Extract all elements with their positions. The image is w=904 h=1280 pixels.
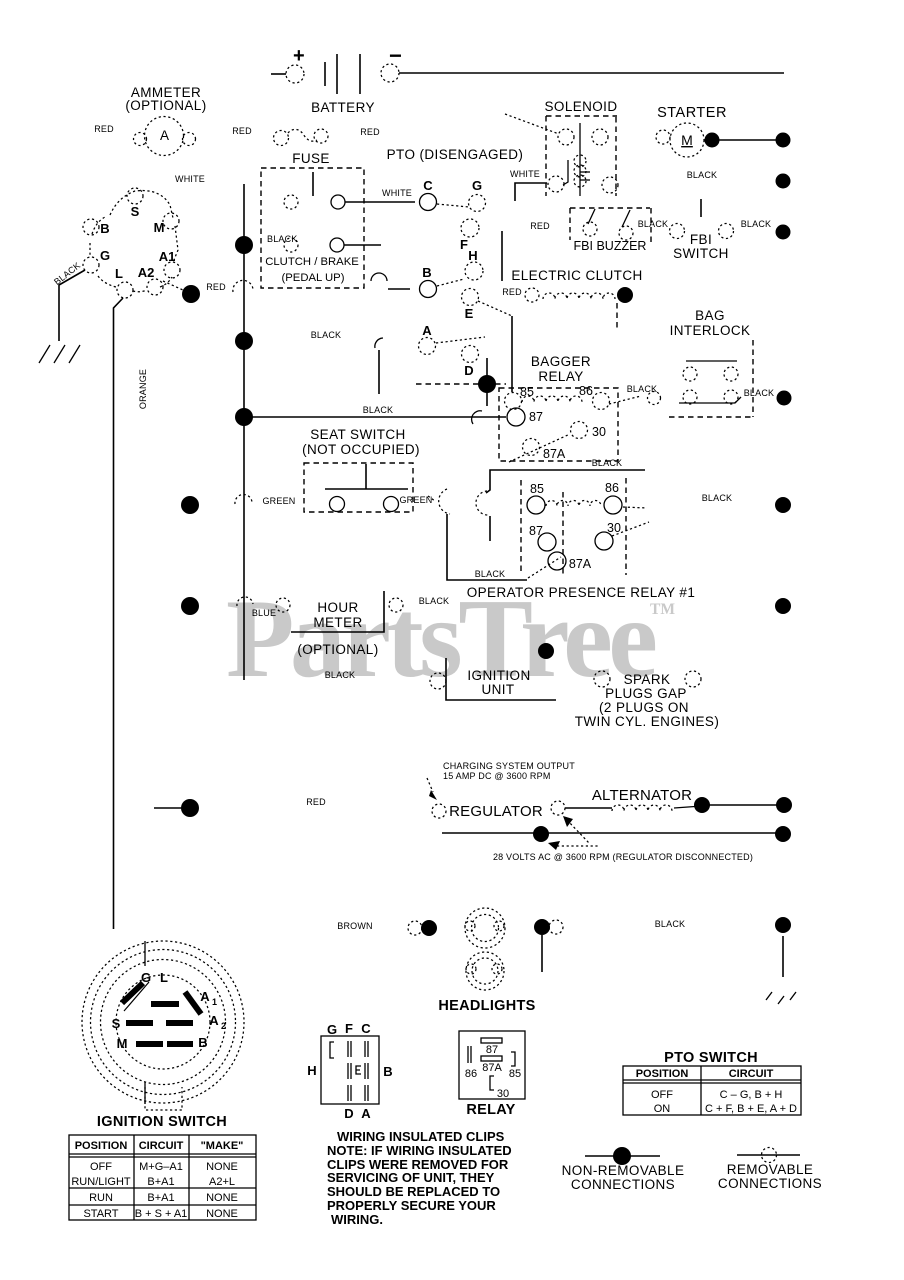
svg-text:ALTERNATOR: ALTERNATOR — [592, 787, 692, 804]
svg-text:RED: RED — [94, 124, 114, 134]
svg-text:CONNECTIONS: CONNECTIONS — [718, 1176, 822, 1191]
svg-text:C: C — [423, 178, 433, 193]
svg-text:D: D — [344, 1106, 353, 1121]
svg-text:H: H — [468, 248, 477, 263]
svg-text:30: 30 — [497, 1088, 509, 1100]
svg-text:C: C — [361, 1021, 371, 1036]
svg-text:ELECTRIC CLUTCH: ELECTRIC CLUTCH — [511, 268, 642, 283]
svg-text:RUN: RUN — [89, 1192, 113, 1204]
svg-text:G: G — [472, 178, 482, 193]
svg-text:OPERATOR PRESENCE RELAY #1: OPERATOR PRESENCE RELAY #1 — [467, 585, 695, 600]
svg-text:BLACK: BLACK — [655, 919, 686, 929]
svg-text:HEADLIGHTS: HEADLIGHTS — [438, 998, 535, 1014]
svg-text:CIRCUIT: CIRCUIT — [729, 1068, 774, 1080]
svg-text:RED: RED — [502, 287, 522, 297]
svg-text:85: 85 — [530, 482, 544, 496]
svg-text:S: S — [112, 1016, 121, 1031]
svg-text:NONE: NONE — [206, 1192, 238, 1204]
svg-text:(PEDAL UP): (PEDAL UP) — [282, 272, 345, 284]
svg-text:POSITION: POSITION — [636, 1068, 689, 1080]
svg-text:87A: 87A — [482, 1062, 502, 1074]
svg-text:BLUE: BLUE — [252, 608, 276, 618]
svg-text:SPARK: SPARK — [624, 672, 671, 687]
svg-text:HOUR: HOUR — [317, 600, 358, 615]
svg-text:CIRCUIT: CIRCUIT — [139, 1140, 184, 1152]
svg-text:RED: RED — [530, 221, 550, 231]
svg-text:28 VOLTS AC @ 3600 RPM (REGULA: 28 VOLTS AC @ 3600 RPM (REGULATOR DISCON… — [493, 852, 753, 862]
svg-text:BLACK: BLACK — [687, 170, 718, 180]
svg-text:NONE: NONE — [206, 1161, 238, 1173]
svg-text:BLACK: BLACK — [592, 458, 623, 468]
svg-text:PTO (DISENGAGED): PTO (DISENGAGED) — [387, 147, 524, 162]
svg-text:87: 87 — [529, 410, 543, 424]
svg-text:RED: RED — [306, 797, 326, 807]
svg-text:PTO SWITCH: PTO SWITCH — [664, 1050, 758, 1066]
svg-text:SWITCH: SWITCH — [673, 246, 729, 261]
svg-text:BATTERY: BATTERY — [311, 100, 375, 115]
svg-text:SEAT SWITCH: SEAT SWITCH — [310, 427, 405, 442]
svg-text:A: A — [209, 1013, 219, 1028]
svg-text:A: A — [422, 323, 432, 338]
svg-text:RED: RED — [360, 127, 380, 137]
svg-text:CLUTCH / BRAKE: CLUTCH / BRAKE — [265, 256, 359, 268]
svg-text:M: M — [117, 1036, 128, 1051]
svg-text:L: L — [160, 970, 168, 985]
svg-text:RED: RED — [206, 282, 226, 292]
svg-text:WIRING INSULATED CLIPS: WIRING INSULATED CLIPS — [337, 1129, 505, 1144]
svg-text:(2 PLUGS ON: (2 PLUGS ON — [599, 700, 689, 715]
svg-text:H: H — [307, 1063, 316, 1078]
svg-text:A: A — [160, 128, 169, 143]
svg-text:CHARGING SYSTEM OUTPUT: CHARGING SYSTEM OUTPUT — [443, 761, 575, 771]
svg-text:FUSE: FUSE — [292, 151, 330, 166]
svg-text:85: 85 — [520, 385, 534, 399]
svg-text:WHITE: WHITE — [175, 174, 205, 184]
svg-text:87A: 87A — [543, 447, 566, 461]
svg-text:ON: ON — [654, 1103, 671, 1115]
svg-text:87A: 87A — [569, 557, 592, 571]
svg-text:1: 1 — [212, 997, 217, 1007]
svg-text:D: D — [464, 363, 473, 378]
svg-text:M+G–A1: M+G–A1 — [139, 1161, 183, 1173]
svg-text:OFF: OFF — [651, 1089, 673, 1101]
svg-text:BLACK: BLACK — [311, 330, 342, 340]
svg-text:G: G — [327, 1022, 337, 1037]
svg-text:S: S — [131, 204, 140, 219]
svg-text:86: 86 — [579, 384, 593, 398]
svg-text:BLACK: BLACK — [475, 569, 506, 579]
svg-text:B: B — [422, 265, 431, 280]
svg-text:BLACK: BLACK — [744, 388, 775, 398]
svg-text:BLACK: BLACK — [363, 405, 394, 415]
svg-text:B+A1: B+A1 — [147, 1176, 174, 1188]
svg-text:WHITE: WHITE — [510, 169, 540, 179]
svg-text:BAG: BAG — [695, 308, 725, 323]
svg-text:2: 2 — [221, 1021, 226, 1031]
svg-text:CONNECTIONS: CONNECTIONS — [571, 1177, 675, 1192]
svg-text:C – G, B + H: C – G, B + H — [720, 1089, 783, 1101]
svg-text:UNIT: UNIT — [481, 682, 514, 697]
svg-text:A: A — [361, 1106, 371, 1121]
svg-text:IGNITION SWITCH: IGNITION SWITCH — [97, 1114, 227, 1130]
svg-text:+: + — [293, 45, 305, 67]
svg-text:REGULATOR: REGULATOR — [449, 803, 543, 820]
svg-text:RED: RED — [232, 126, 252, 136]
svg-text:BLACK: BLACK — [741, 219, 772, 229]
svg-text:REMOVABLE: REMOVABLE — [727, 1162, 814, 1177]
svg-text:WHITE: WHITE — [382, 188, 412, 198]
svg-text:NON-REMOVABLE: NON-REMOVABLE — [562, 1163, 685, 1178]
svg-text:(OPTIONAL): (OPTIONAL) — [125, 98, 206, 113]
svg-text:BLACK: BLACK — [419, 596, 450, 606]
svg-text:15 AMP DC @ 3600 RPM: 15 AMP DC @ 3600 RPM — [443, 771, 551, 781]
svg-text:85: 85 — [509, 1068, 521, 1080]
svg-text:C + F, B + E, A + D: C + F, B + E, A + D — [705, 1103, 797, 1115]
svg-text:G: G — [141, 970, 151, 985]
svg-text:BLACK: BLACK — [325, 670, 356, 680]
svg-text:RUN/LIGHT: RUN/LIGHT — [71, 1176, 131, 1188]
svg-text:(NOT OCCUPIED): (NOT OCCUPIED) — [302, 442, 420, 457]
svg-text:87: 87 — [486, 1044, 498, 1056]
svg-text:SOLENOID: SOLENOID — [545, 99, 618, 114]
svg-text:SERVICING OF UNIT, THEY: SERVICING OF UNIT, THEY — [327, 1170, 495, 1185]
svg-text:METER: METER — [313, 615, 362, 630]
svg-text:PROPERLY SECURE YOUR: PROPERLY SECURE YOUR — [327, 1198, 496, 1213]
svg-text:BLACK: BLACK — [627, 384, 658, 394]
svg-text:TWIN CYL. ENGINES): TWIN CYL. ENGINES) — [575, 714, 719, 729]
svg-text:RELAY: RELAY — [466, 1102, 515, 1118]
svg-text:PLUGS GAP: PLUGS GAP — [605, 686, 687, 701]
svg-text:BROWN: BROWN — [337, 921, 373, 931]
svg-text:BLACK: BLACK — [702, 493, 733, 503]
svg-text:F: F — [460, 237, 468, 252]
svg-text:A2: A2 — [138, 265, 155, 280]
svg-text:M: M — [681, 132, 693, 148]
svg-text:OFF: OFF — [90, 1161, 112, 1173]
svg-text:G: G — [100, 248, 110, 263]
svg-text:IGNITION: IGNITION — [467, 668, 530, 683]
svg-text:NOTE: IF WIRING INSULATED: NOTE: IF WIRING INSULATED — [327, 1143, 512, 1158]
svg-text:START: START — [83, 1208, 118, 1220]
svg-text:B + S + A1: B + S + A1 — [135, 1208, 188, 1220]
svg-text:FBI BUZZER: FBI BUZZER — [574, 239, 647, 253]
svg-text:B: B — [198, 1035, 207, 1050]
svg-text:E: E — [465, 306, 474, 321]
svg-text:INTERLOCK: INTERLOCK — [670, 323, 751, 338]
svg-text:STARTER: STARTER — [657, 105, 727, 121]
svg-text:A2+L: A2+L — [209, 1176, 235, 1188]
svg-text:BLACK: BLACK — [638, 219, 669, 229]
svg-text:86: 86 — [465, 1068, 477, 1080]
svg-text:POSITION: POSITION — [75, 1140, 128, 1152]
svg-text:B+A1: B+A1 — [147, 1192, 174, 1204]
svg-text:A1: A1 — [159, 249, 176, 264]
svg-text:A: A — [200, 989, 210, 1004]
svg-text:−: − — [389, 43, 402, 68]
svg-text:BAGGER: BAGGER — [531, 354, 591, 369]
svg-text:NONE: NONE — [206, 1208, 238, 1220]
svg-text:M: M — [154, 220, 165, 235]
svg-text:30: 30 — [592, 425, 606, 439]
svg-text:FBI: FBI — [690, 232, 712, 247]
svg-text:"MAKE": "MAKE" — [201, 1140, 244, 1152]
svg-text:WIRING.: WIRING. — [331, 1212, 383, 1227]
svg-text:F: F — [345, 1021, 353, 1036]
svg-text:B: B — [383, 1064, 392, 1079]
svg-text:86: 86 — [605, 481, 619, 495]
svg-text:B: B — [100, 221, 109, 236]
svg-text:SHOULD BE REPLACED TO: SHOULD BE REPLACED TO — [327, 1184, 500, 1199]
svg-text:RELAY: RELAY — [538, 369, 583, 384]
svg-text:(OPTIONAL): (OPTIONAL) — [297, 642, 378, 657]
svg-text:GREEN: GREEN — [262, 496, 295, 506]
svg-text:L: L — [115, 266, 123, 281]
svg-text:BLACK: BLACK — [267, 234, 298, 244]
svg-text:GREEN: GREEN — [399, 495, 432, 505]
svg-text:TM: TM — [650, 601, 675, 618]
svg-text:ORANGE: ORANGE — [138, 369, 148, 409]
